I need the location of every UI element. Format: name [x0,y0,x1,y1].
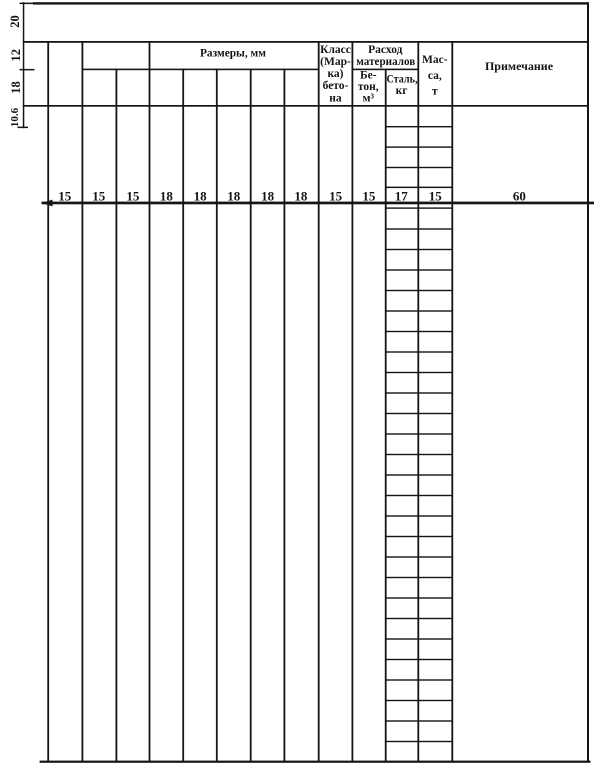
svg-text:15: 15 [92,189,106,204]
svg-text:18: 18 [261,189,275,204]
svg-text:Размеры, мм: Размеры, мм [200,46,266,60]
svg-text:т: т [432,86,438,98]
svg-text:12: 12 [9,49,23,62]
svg-text:15: 15 [429,189,443,204]
svg-text:18: 18 [227,189,241,204]
svg-text:ка): ка) [327,68,343,80]
svg-text:тон,: тон, [358,81,379,93]
svg-text:15: 15 [58,189,72,204]
svg-text:15: 15 [362,189,376,204]
svg-text:18: 18 [194,189,208,204]
svg-text:10.6: 10.6 [9,107,21,127]
svg-text:(Мар-: (Мар- [320,56,351,68]
svg-text:Класс: Класс [320,44,351,56]
svg-text:са,: са, [428,70,442,82]
svg-text:бето-: бето- [323,80,349,92]
svg-text:18: 18 [9,81,23,94]
svg-text:материалов: материалов [356,56,415,68]
svg-text:м³: м³ [363,93,375,105]
svg-text:18: 18 [160,189,174,204]
svg-text:20: 20 [8,15,22,28]
svg-text:17: 17 [395,189,409,204]
svg-text:15: 15 [126,189,140,204]
svg-text:Расход: Расход [368,44,402,56]
svg-text:Мас-: Мас- [422,54,448,66]
svg-text:кг: кг [396,85,408,97]
svg-text:Сталь,: Сталь, [387,74,418,86]
svg-text:60: 60 [513,189,526,204]
svg-text:18: 18 [294,189,308,204]
svg-text:на: на [329,92,342,104]
svg-text:15: 15 [329,189,343,204]
svg-text:Примечание: Примечание [485,59,554,73]
svg-text:Бе-: Бе- [360,70,377,82]
